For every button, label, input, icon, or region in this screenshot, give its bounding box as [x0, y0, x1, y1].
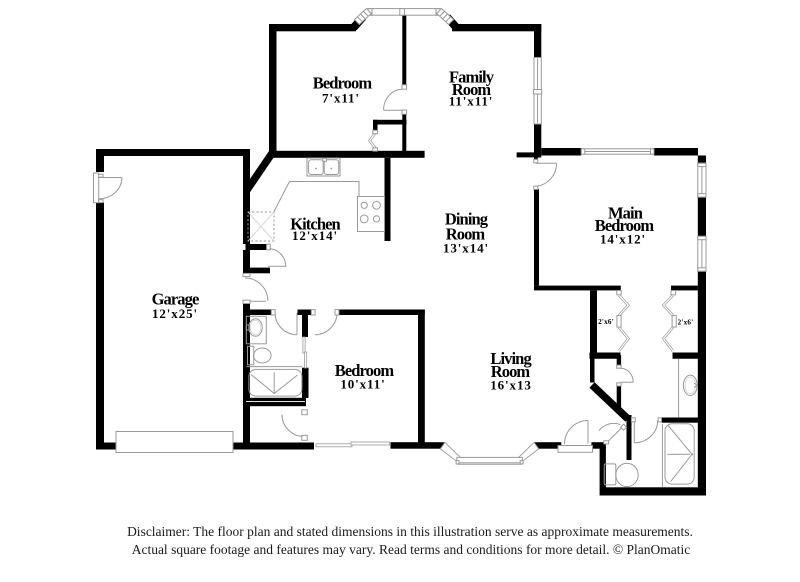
svg-text:Actual square footage and feat: Actual square footage and features may v…	[132, 542, 691, 557]
svg-text:10'x11': 10'x11'	[340, 377, 385, 392]
svg-text:16'x13: 16'x13	[490, 378, 532, 393]
svg-text:13'x14': 13'x14'	[443, 240, 489, 255]
svg-text:12'x25': 12'x25'	[152, 306, 198, 321]
svg-text:Disclaimer: The floor plan and: Disclaimer: The floor plan and stated di…	[127, 524, 693, 539]
svg-text:2'x6': 2'x6'	[678, 318, 694, 326]
svg-text:12'x14': 12'x14'	[292, 228, 338, 243]
svg-text:14'x12': 14'x12'	[600, 232, 646, 247]
svg-text:2'x6': 2'x6'	[598, 318, 614, 326]
svg-text:7'x11': 7'x11'	[322, 90, 360, 105]
svg-text:11'x11': 11'x11'	[449, 93, 494, 108]
